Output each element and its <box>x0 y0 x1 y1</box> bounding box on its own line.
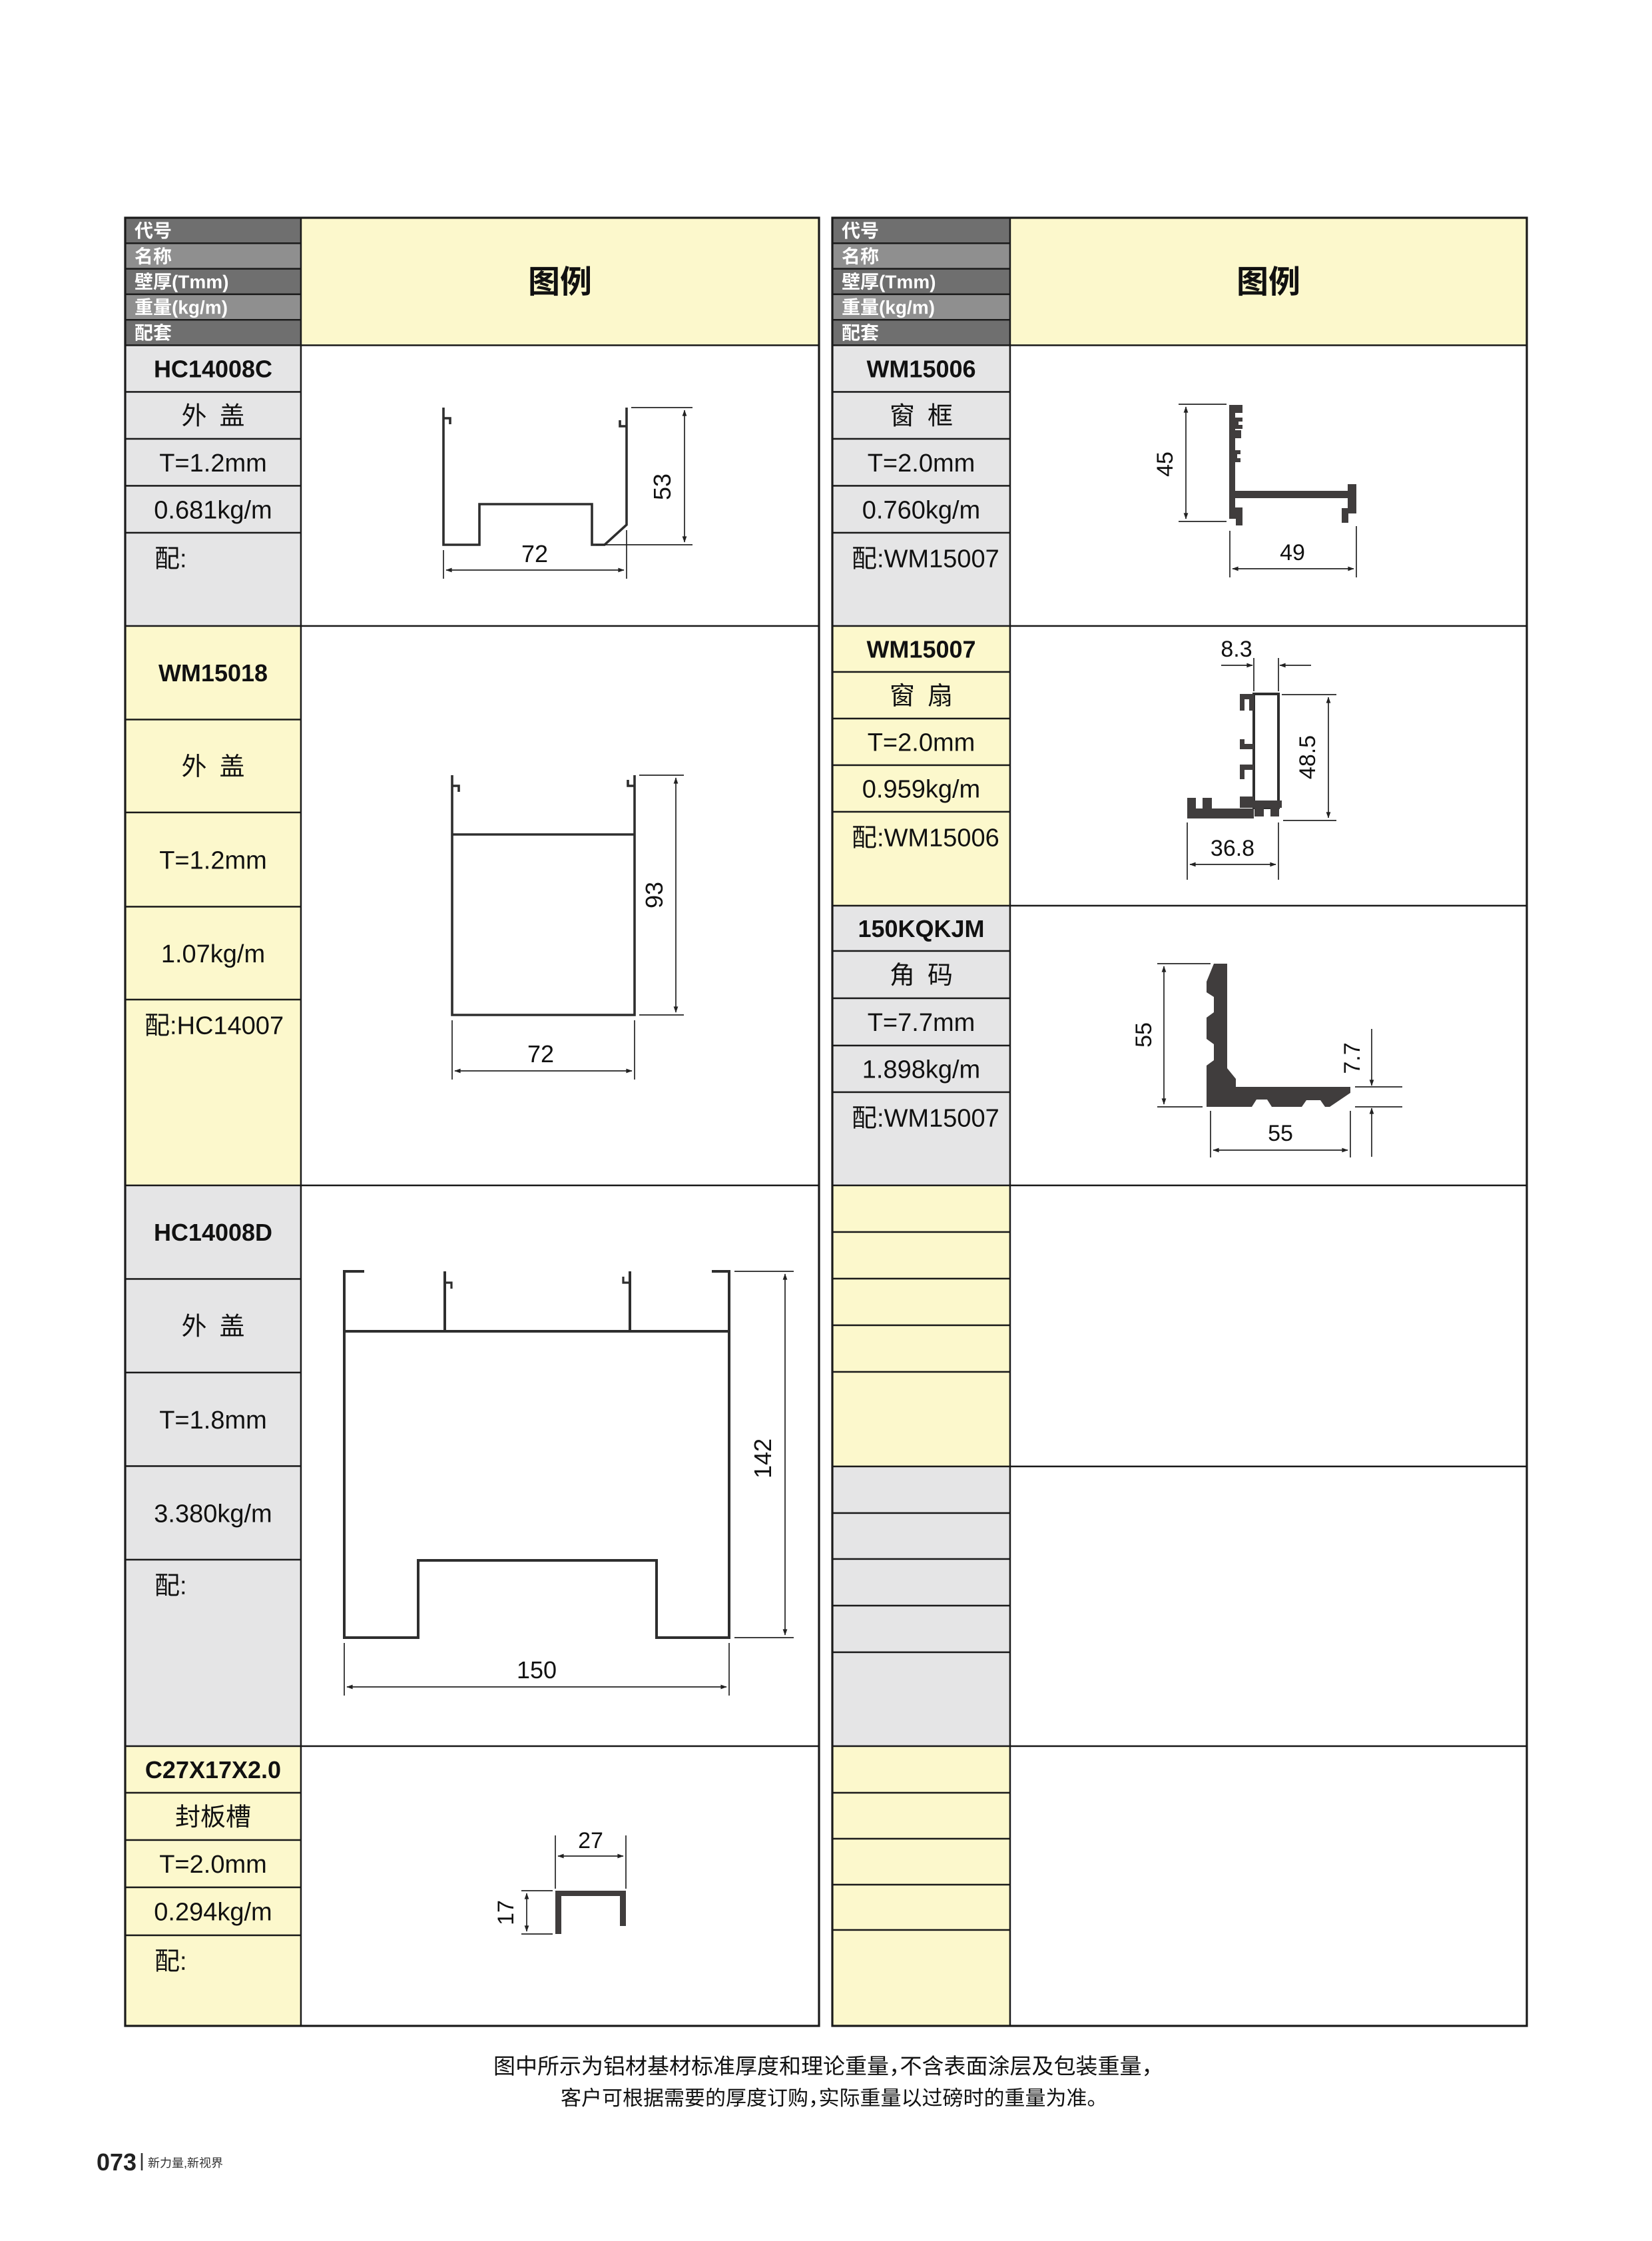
svg-text:T=7.7mm: T=7.7mm <box>868 1009 975 1037</box>
svg-text:HC14008C: HC14008C <box>154 356 272 383</box>
svg-text:53: 53 <box>649 474 676 500</box>
svg-text:HC14008D: HC14008D <box>154 1219 272 1246</box>
svg-text:55: 55 <box>1268 1121 1293 1146</box>
svg-text:0.760kg/m: 0.760kg/m <box>862 496 980 524</box>
svg-text:150KQKJM: 150KQKJM <box>858 915 984 942</box>
svg-text:36.8: 36.8 <box>1211 836 1254 861</box>
svg-text:72: 72 <box>527 1040 554 1068</box>
svg-text:55: 55 <box>1131 1022 1157 1048</box>
svg-text:0.294kg/m: 0.294kg/m <box>154 1899 272 1927</box>
svg-text:WM15006: WM15006 <box>866 356 975 383</box>
svg-text:8.3: 8.3 <box>1221 637 1252 662</box>
svg-text:T=1.8mm: T=1.8mm <box>159 1407 267 1435</box>
svg-text:T=1.2mm: T=1.2mm <box>159 450 267 478</box>
svg-text:3.380kg/m: 3.380kg/m <box>154 1500 272 1528</box>
svg-text:27: 27 <box>578 1828 603 1853</box>
svg-text:1.07kg/m: 1.07kg/m <box>161 940 265 968</box>
svg-text:073: 073 <box>97 2148 137 2176</box>
svg-text:T=2.0mm: T=2.0mm <box>868 729 975 757</box>
svg-text:72: 72 <box>521 540 548 567</box>
svg-text:17: 17 <box>493 1900 519 1925</box>
svg-text:7.7: 7.7 <box>1340 1042 1365 1074</box>
svg-text:1.898kg/m: 1.898kg/m <box>862 1056 980 1084</box>
svg-text:T=2.0mm: T=2.0mm <box>159 1851 267 1879</box>
svg-text:T=1.2mm: T=1.2mm <box>159 846 267 874</box>
svg-text:142: 142 <box>749 1439 776 1478</box>
svg-text:45: 45 <box>1153 452 1178 477</box>
svg-text:T=2.0mm: T=2.0mm <box>868 450 975 478</box>
svg-text:93: 93 <box>641 882 668 908</box>
svg-text:WM15007: WM15007 <box>866 636 975 663</box>
svg-text:150: 150 <box>517 1656 557 1684</box>
svg-text:48.5: 48.5 <box>1295 735 1320 779</box>
svg-text:C27X17X2.0: C27X17X2.0 <box>145 1756 281 1783</box>
svg-text:WM15018: WM15018 <box>158 659 268 687</box>
svg-text:0.959kg/m: 0.959kg/m <box>862 776 980 804</box>
svg-text:49: 49 <box>1280 540 1305 565</box>
svg-text:0.681kg/m: 0.681kg/m <box>154 496 272 524</box>
